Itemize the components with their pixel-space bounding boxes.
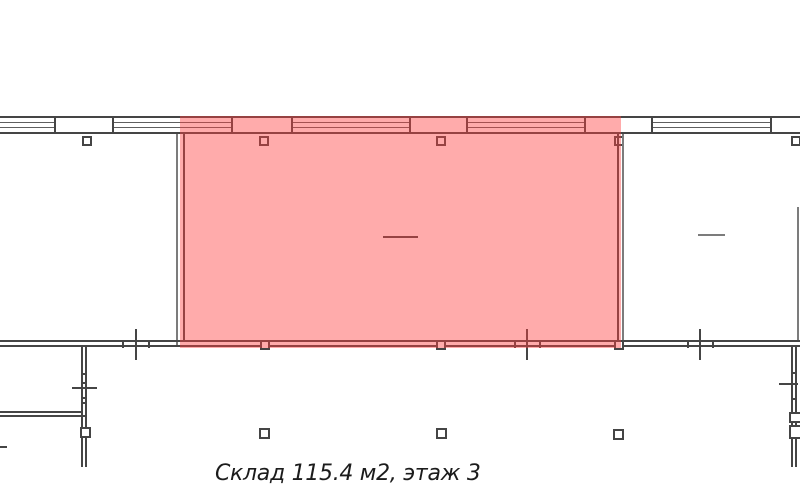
column-marker [259, 428, 270, 439]
wall-pier-divider [112, 116, 114, 134]
window-glazing-line [651, 122, 771, 123]
edge-fixture-mark [789, 425, 800, 439]
plan-caption: Склад 115.4 м2, этаж 3 [215, 461, 481, 486]
axis-cross-tick [699, 329, 701, 360]
wall-pier-divider [770, 116, 772, 134]
wall-pier-divider [651, 116, 653, 134]
lower-left-wall [85, 346, 87, 467]
lower-right-wall [795, 346, 797, 467]
window-glazing-line [0, 127, 54, 128]
left-room-partition-wall [176, 134, 178, 346]
right-edge-wall [797, 207, 799, 341]
highlighted-room-overlay [180, 116, 621, 348]
floor-plan-canvas: Склад 115.4 м2, этаж 3 [0, 0, 800, 497]
window-glazing-line [0, 122, 54, 123]
column-marker [82, 136, 92, 146]
door-jamb-mark [81, 382, 87, 384]
lower-left-room-bottom-wall [0, 415, 87, 417]
lower-right-wall [791, 346, 793, 467]
lower-left-room-bottom-wall [0, 411, 83, 413]
column-marker [80, 427, 91, 438]
wall-tick [148, 340, 150, 348]
column-marker [613, 429, 624, 440]
door-jamb-mark [81, 397, 87, 399]
wall-tick [712, 340, 714, 348]
door-jamb-mark [81, 402, 87, 404]
right-room-dash-mark [698, 234, 725, 236]
right-room-partition-wall [622, 134, 624, 346]
door-jamb-mark [791, 398, 797, 400]
column-marker [791, 136, 800, 146]
axis-cross-tick [779, 383, 798, 385]
wall-tick [122, 340, 124, 348]
column-marker [436, 428, 447, 439]
axis-cross-tick [135, 329, 137, 360]
wall-tick [687, 340, 689, 348]
wall-tick [0, 446, 7, 448]
lower-left-wall [81, 346, 83, 467]
window-glazing-line [651, 127, 771, 128]
door-jamb-mark [791, 372, 797, 374]
wall-pier-divider [54, 116, 56, 134]
edge-fixture-mark [789, 412, 800, 423]
door-jamb-mark [81, 373, 87, 375]
axis-cross-tick [72, 387, 97, 389]
